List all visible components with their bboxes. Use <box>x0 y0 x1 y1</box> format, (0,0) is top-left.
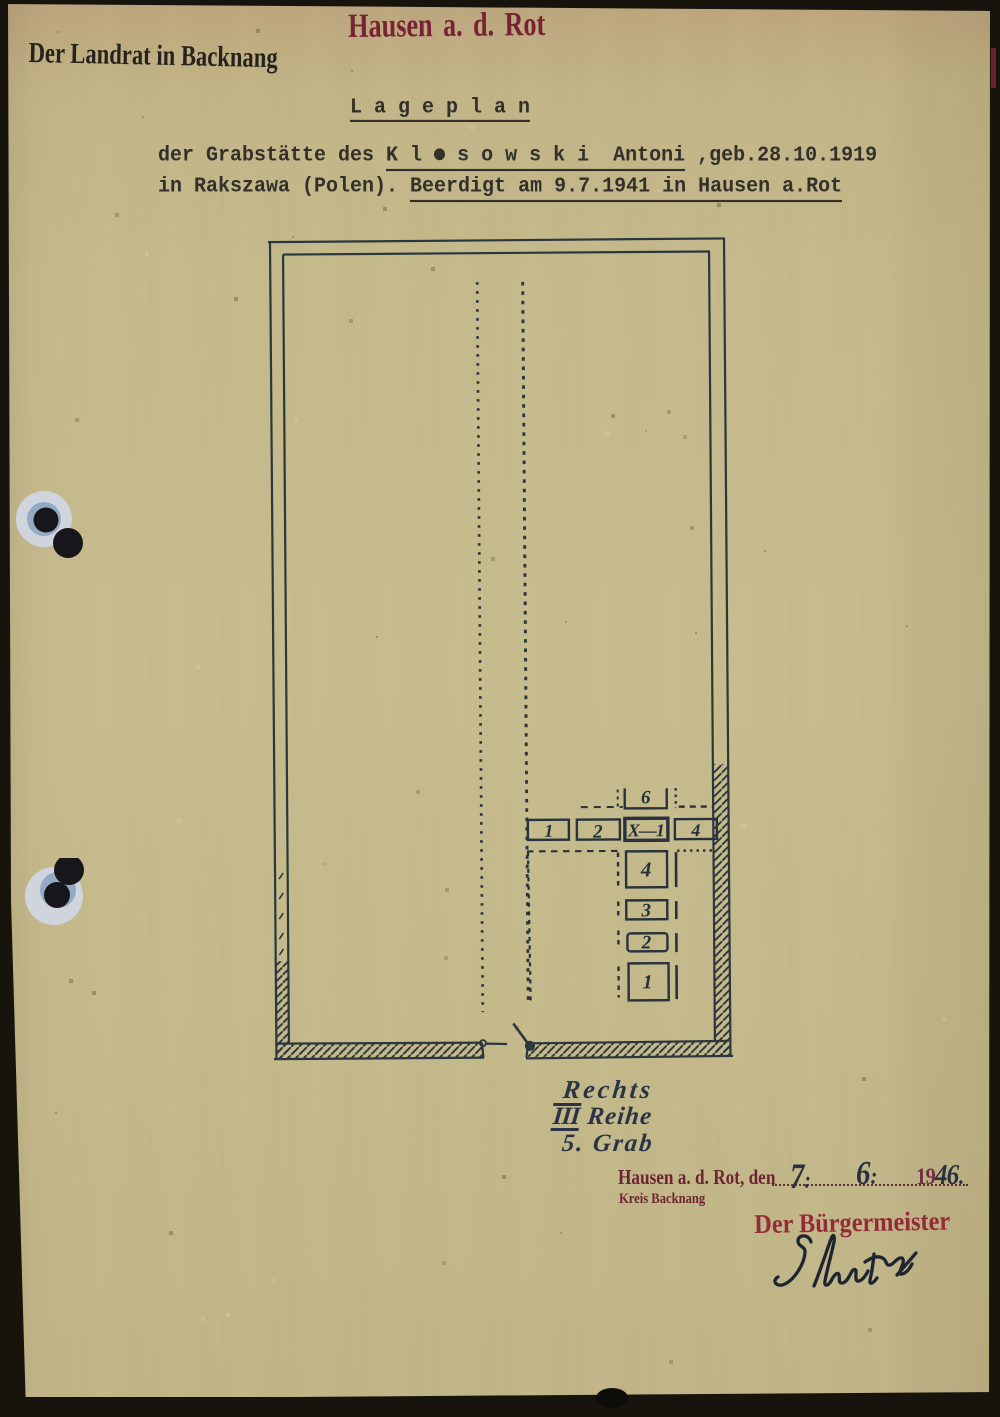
svg-text:6: 6 <box>641 787 651 808</box>
svg-text:4: 4 <box>690 820 700 840</box>
svg-text:2: 2 <box>592 822 603 843</box>
svg-text:X—1: X—1 <box>627 820 664 840</box>
svg-text:4: 4 <box>640 857 652 881</box>
svg-text:1: 1 <box>544 821 553 841</box>
svg-text:3: 3 <box>640 900 651 921</box>
svg-text:2: 2 <box>641 932 652 953</box>
svg-text:1: 1 <box>643 971 653 993</box>
